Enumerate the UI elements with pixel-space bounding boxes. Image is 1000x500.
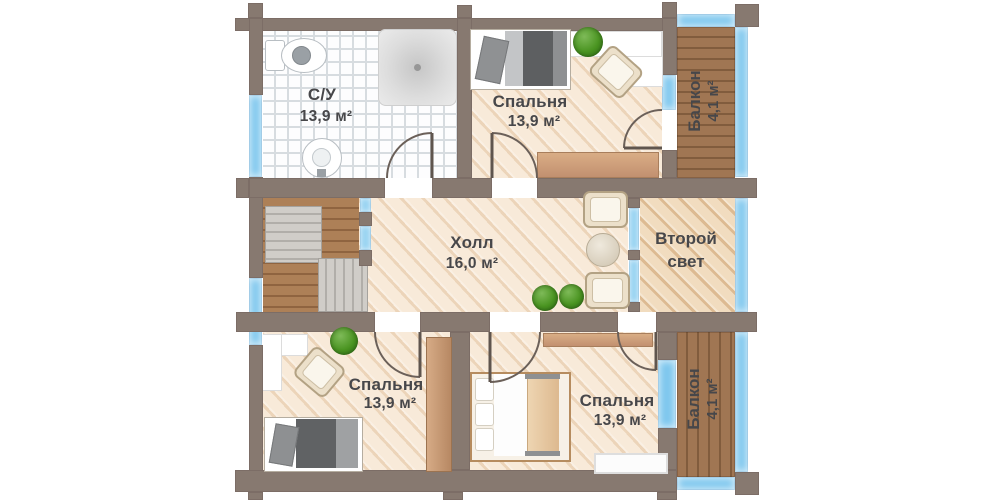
balcony-glazing	[677, 477, 735, 490]
footboard-bar	[525, 374, 560, 379]
stair-railing-post	[359, 212, 372, 226]
wall-interior	[236, 312, 375, 332]
room-area-hall: 16,0 м²	[446, 255, 499, 273]
wall-bedrooms-divider	[450, 332, 470, 470]
wall-interior	[656, 312, 757, 332]
wall-top	[235, 18, 677, 31]
balcony-glazing	[677, 14, 735, 27]
bed	[264, 417, 363, 472]
stair-flight-lower	[318, 258, 368, 312]
log-end	[236, 178, 249, 198]
wardrobe	[426, 337, 452, 472]
toilet-drain	[292, 46, 311, 65]
desk	[263, 334, 282, 391]
armchair-seat	[592, 278, 623, 303]
stair-railing-glass	[360, 198, 371, 212]
dresser	[537, 152, 659, 178]
room-label-balcony-bottom: Балкон 4,1 м²	[684, 334, 722, 464]
armchair	[583, 191, 628, 228]
bed	[470, 29, 571, 90]
railing-post	[628, 198, 640, 208]
room-label-bedroom-top: Спальня	[493, 92, 568, 112]
pillow	[475, 378, 494, 401]
corner-post	[735, 472, 759, 495]
blanket	[296, 419, 336, 468]
room-label-second-light: Второй свет	[640, 228, 732, 274]
room-area-bedroom-top: 13,9 м²	[508, 113, 561, 131]
wall-interior	[432, 178, 492, 198]
armchair-seat	[590, 197, 621, 222]
second-light-glazing	[735, 198, 748, 312]
log-end	[657, 492, 677, 500]
stair-railing-glass	[360, 226, 371, 250]
room-area-bedroom-left: 13,9 м²	[364, 395, 417, 413]
dresser	[543, 333, 653, 347]
log-end	[457, 5, 472, 18]
stair-railing-post	[359, 250, 372, 266]
wall-right-top	[662, 18, 677, 75]
plant	[559, 284, 584, 309]
plant	[573, 27, 603, 57]
wall-interior	[420, 312, 490, 332]
floor-plan: С/У 13,9 м² Спальня 13,9 м² Холл 16,0 м²…	[0, 0, 1000, 500]
room-label-balcony-top: Балкон 4,1 м²	[685, 36, 723, 166]
pillow	[269, 423, 300, 467]
railing-glass	[629, 208, 639, 250]
double-bed	[470, 372, 571, 462]
balcony-glazing	[735, 27, 748, 177]
pillow	[475, 428, 494, 451]
footboard	[527, 374, 559, 456]
sink-basin	[312, 148, 331, 167]
stair-flight-upper	[265, 206, 322, 263]
wall-interior	[540, 312, 618, 332]
log-end	[248, 3, 263, 18]
shower-drain	[414, 64, 421, 71]
blanket	[505, 31, 523, 86]
blanket	[523, 31, 553, 86]
log-end	[443, 492, 463, 500]
log-end	[662, 2, 677, 18]
armchair-seat	[596, 52, 636, 91]
balcony-name: Балкон	[685, 36, 705, 166]
window	[249, 95, 262, 177]
blanket	[553, 31, 567, 86]
wall-right-bottom	[658, 332, 677, 360]
room-label-bedroom-left: Спальня	[349, 375, 424, 395]
room-label-bathroom: С/У	[308, 85, 336, 105]
wall-left	[249, 18, 263, 95]
armchair	[585, 272, 630, 309]
railing-post	[628, 250, 640, 260]
room-label-bedroom-bottom: Спальня	[580, 391, 655, 411]
plant	[532, 285, 558, 311]
sink-tap	[317, 169, 326, 177]
duvet	[494, 374, 528, 456]
balcony-area: 4,1 м²	[704, 334, 722, 464]
railing-glass	[629, 260, 639, 302]
corner-post	[735, 4, 759, 27]
wall-interior	[249, 178, 385, 198]
wall-interior	[537, 178, 757, 198]
armchair-seat	[301, 353, 338, 390]
plant	[330, 327, 358, 355]
log-end	[248, 492, 263, 500]
room-area-bathroom: 13,9 м²	[300, 108, 353, 126]
footboard-bar	[525, 451, 560, 456]
window-balcony-bottom	[658, 360, 676, 428]
room-label-hall: Холл	[450, 233, 493, 253]
balcony-glazing	[735, 332, 748, 472]
coffee-table	[586, 233, 620, 267]
window-balcony-top	[662, 75, 676, 110]
rug	[594, 453, 668, 474]
wall-right-top	[662, 150, 677, 178]
room-area-bedroom-bottom: 13,9 м²	[594, 412, 647, 430]
pillow	[475, 403, 494, 426]
blanket	[336, 419, 358, 468]
balcony-name: Балкон	[684, 334, 704, 464]
balcony-area: 4,1 м²	[705, 36, 723, 166]
